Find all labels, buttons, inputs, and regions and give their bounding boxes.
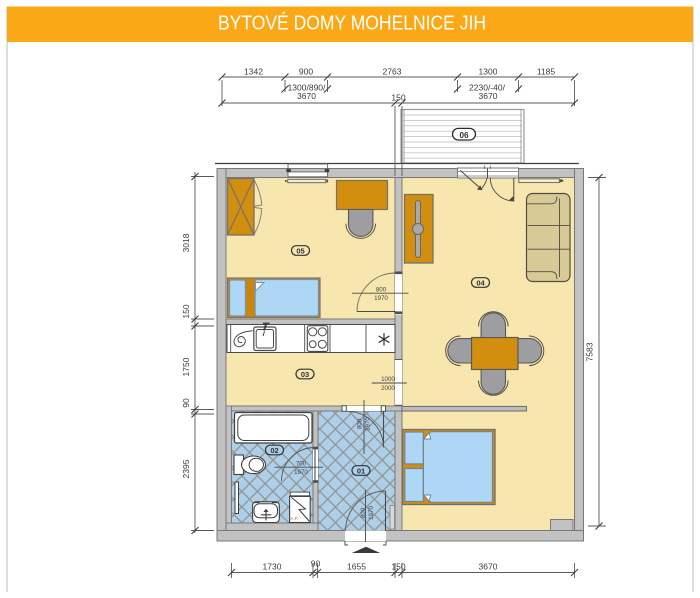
svg-text:01: 01 [357, 466, 365, 475]
svg-text:1970: 1970 [294, 469, 308, 476]
svg-text:800: 800 [376, 286, 387, 293]
svg-text:800: 800 [357, 418, 364, 429]
svg-text:1185: 1185 [537, 67, 556, 77]
svg-text:BYTOVÉ DOMY MOHELNICE JIH: BYTOVÉ DOMY MOHELNICE JIH [218, 12, 486, 35]
svg-text:1750: 1750 [181, 357, 191, 376]
svg-text:1970: 1970 [368, 506, 375, 520]
svg-text:2395: 2395 [181, 459, 191, 478]
svg-text:2000: 2000 [381, 385, 395, 392]
svg-text:150: 150 [391, 562, 405, 572]
svg-text:06: 06 [459, 131, 469, 140]
svg-text:A.P.: A.P. [290, 516, 298, 521]
svg-text:1000: 1000 [381, 376, 395, 383]
svg-text:900: 900 [299, 67, 313, 77]
svg-text:90: 90 [311, 559, 321, 569]
svg-text:2763: 2763 [383, 67, 402, 77]
svg-text:3018: 3018 [181, 233, 191, 252]
svg-text:03: 03 [301, 370, 309, 379]
svg-text:3670: 3670 [297, 91, 316, 101]
svg-text:90: 90 [181, 398, 191, 408]
svg-text:05: 05 [296, 246, 304, 255]
svg-text:1970: 1970 [365, 417, 372, 431]
svg-text:04: 04 [476, 278, 485, 287]
svg-text:3670: 3670 [479, 562, 498, 572]
svg-text:1300: 1300 [479, 67, 498, 77]
svg-text:7583: 7583 [585, 342, 595, 361]
svg-text:02: 02 [270, 446, 278, 455]
svg-text:1342: 1342 [244, 67, 263, 77]
svg-text:1655: 1655 [347, 562, 366, 572]
svg-text:800: 800 [360, 507, 367, 518]
svg-text:150: 150 [391, 93, 405, 103]
svg-text:700: 700 [296, 460, 307, 467]
svg-text:3670: 3670 [479, 91, 498, 101]
svg-text:150: 150 [181, 304, 191, 318]
svg-text:1970: 1970 [374, 295, 388, 302]
svg-text:1730: 1730 [263, 562, 282, 572]
